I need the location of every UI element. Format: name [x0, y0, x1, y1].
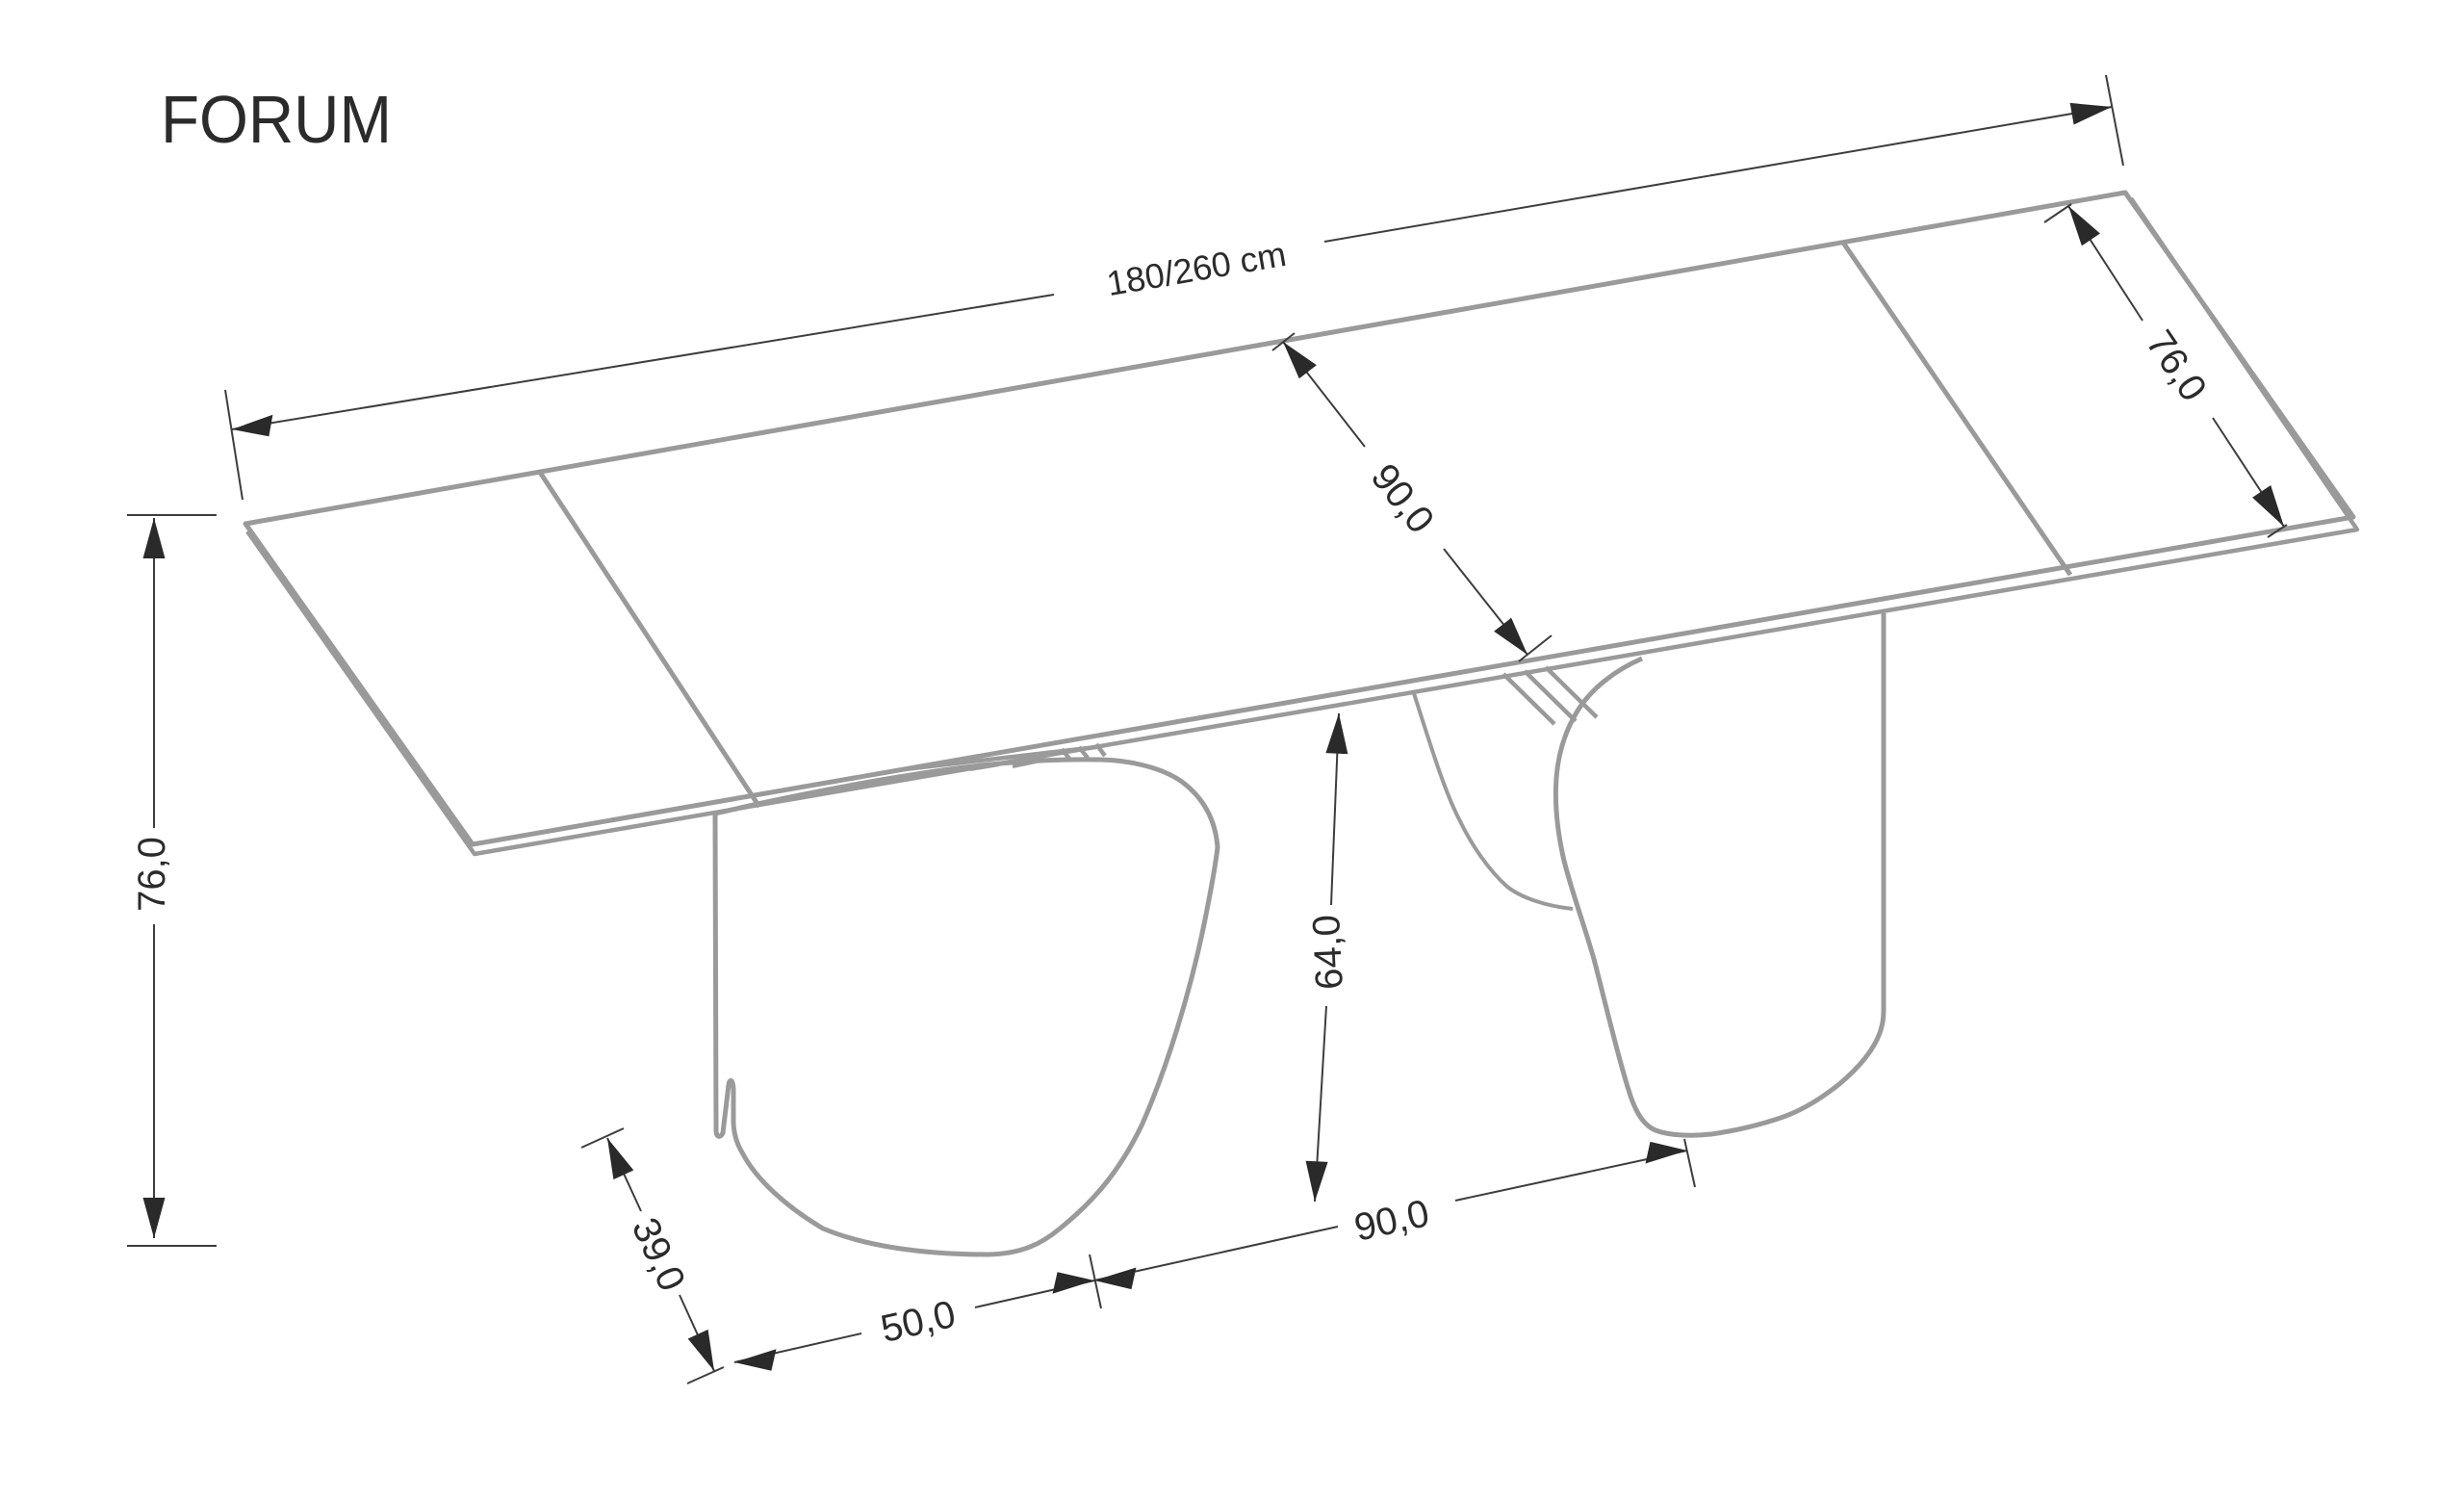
svg-text:64,0: 64,0 [1305, 914, 1351, 991]
svg-text:FORUM: FORUM [161, 82, 392, 157]
svg-text:76,0: 76,0 [131, 837, 173, 912]
